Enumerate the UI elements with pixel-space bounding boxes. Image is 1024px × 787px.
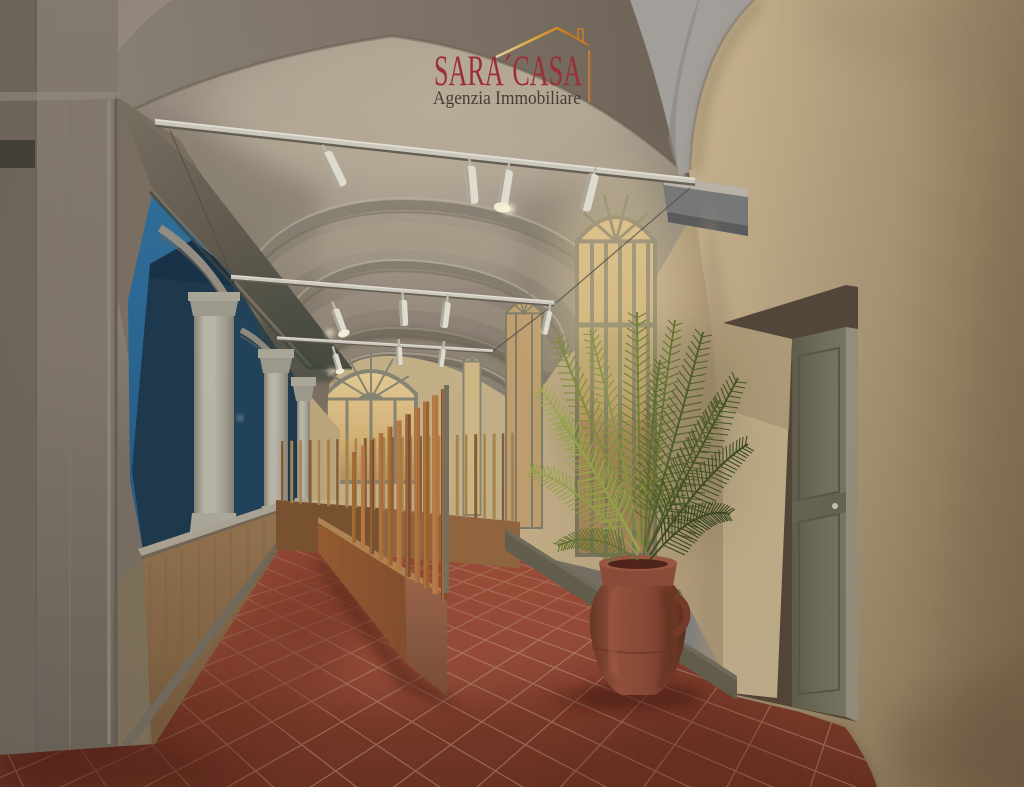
svg-text:SARA´CASA: SARA´CASA: [434, 48, 582, 95]
svg-text:Agenzia Immobiliare: Agenzia Immobiliare: [433, 89, 581, 109]
